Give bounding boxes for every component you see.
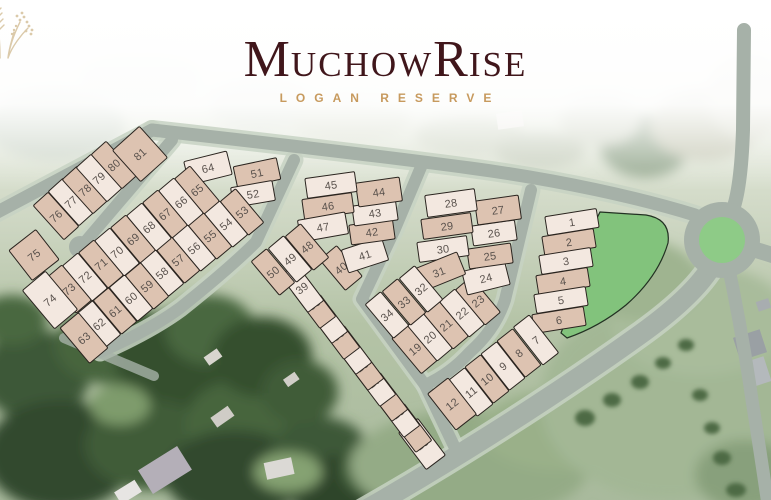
lot-number-label: 47 — [316, 221, 331, 235]
lot-number-label: 45 — [324, 179, 338, 193]
lot-number-label: 25 — [483, 250, 497, 264]
lot-number-label: 52 — [246, 188, 261, 202]
logo-title: MUCHOWRISE — [0, 0, 771, 86]
lot-number-label: 43 — [368, 207, 382, 221]
logo-subtitle: LOGAN RESERVE — [0, 91, 771, 105]
lot-number-label: 26 — [487, 227, 501, 241]
lot-number-label: 28 — [444, 197, 458, 211]
lot-number-label: 30 — [436, 243, 450, 257]
lot-number-label: 27 — [491, 204, 505, 218]
lot-number-label: 46 — [321, 200, 335, 214]
logo-title-part: R — [433, 31, 469, 88]
lot-number-label: 29 — [440, 220, 454, 234]
masterplan-image: 1234567891011121314151617181920212223242… — [0, 0, 771, 500]
lot-number-label: 44 — [372, 186, 386, 200]
logo-title-part: M — [244, 31, 291, 88]
lot-number-label: 42 — [365, 226, 379, 240]
logo-title-part: ISE — [469, 45, 528, 84]
estate-logo: MUCHOWRISE LOGAN RESERVE — [0, 0, 771, 105]
roundabout-island — [699, 217, 745, 263]
logo-title-part: UCHOW — [291, 45, 433, 84]
